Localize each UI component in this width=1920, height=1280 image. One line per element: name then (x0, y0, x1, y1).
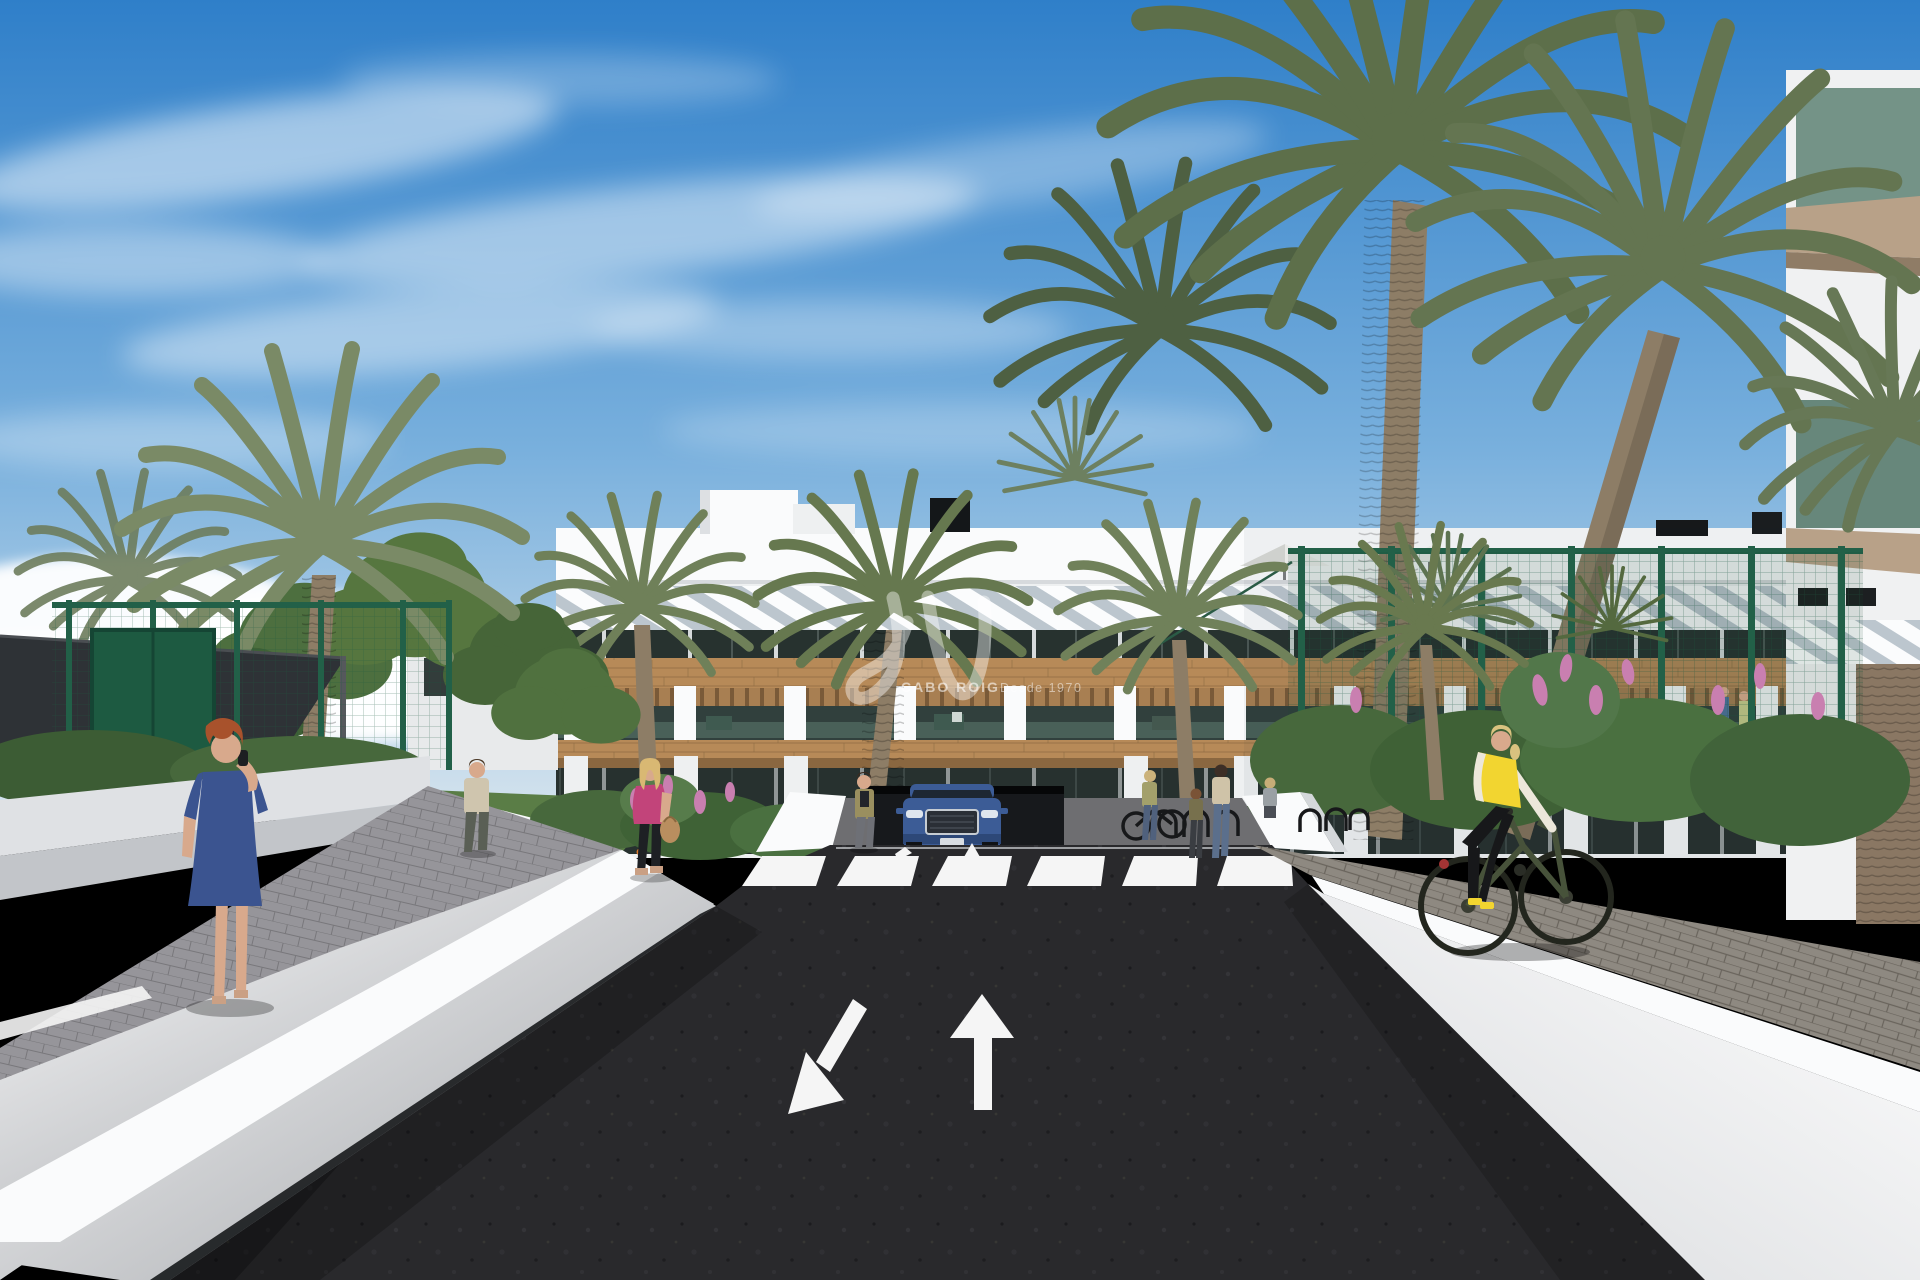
headlight-icon (981, 810, 998, 818)
watermark-tagline: Desde 1970 (1000, 681, 1082, 695)
handbag-icon (660, 817, 680, 843)
watermark-brand: CABO ROIG (901, 679, 1000, 695)
license-plate (940, 838, 964, 846)
architectural-render: CABO ROIG Desde 1970 (0, 0, 1920, 1280)
headlight-icon (906, 810, 923, 818)
bike-reflector-icon (1439, 859, 1449, 869)
